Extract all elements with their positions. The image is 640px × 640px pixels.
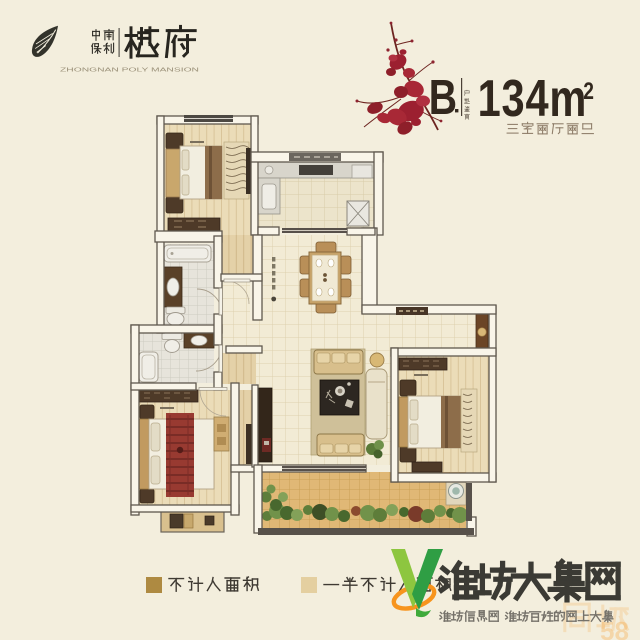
svg-text:134m: 134m xyxy=(478,69,588,128)
svg-text:58: 58 xyxy=(600,616,629,640)
svg-text:B: B xyxy=(429,71,457,125)
svg-text:ZHONGNAN POLY MANSION: ZHONGNAN POLY MANSION xyxy=(60,68,200,74)
svg-text:2: 2 xyxy=(583,77,594,105)
